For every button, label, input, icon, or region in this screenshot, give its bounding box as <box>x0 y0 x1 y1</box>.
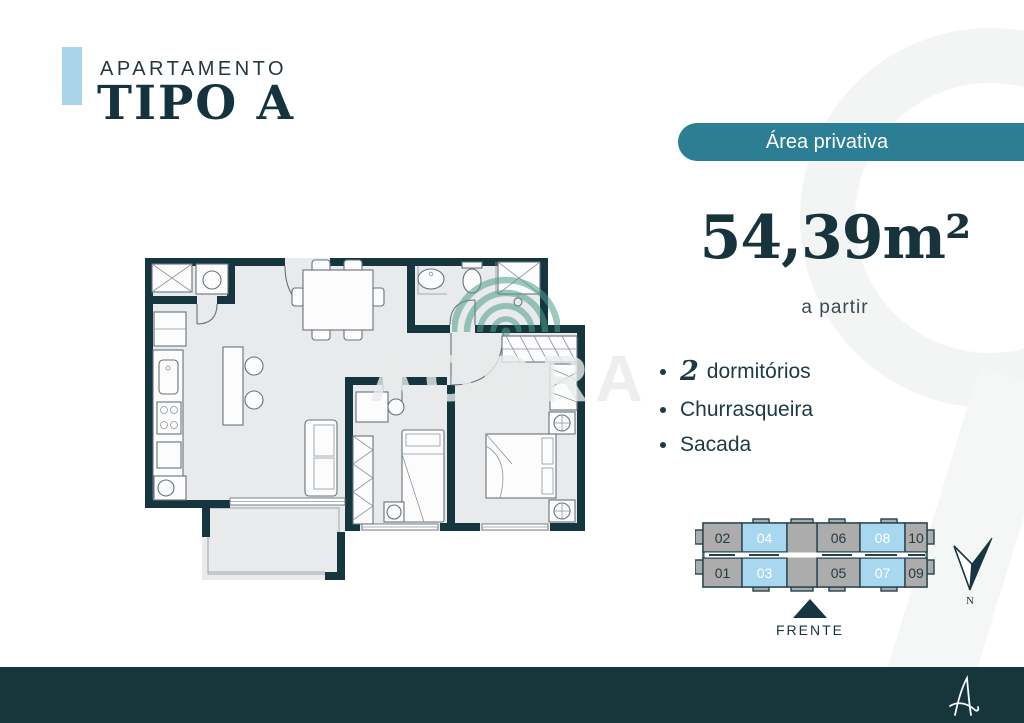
unit-number: 09 <box>908 565 924 581</box>
brand-logo-icon <box>948 675 982 717</box>
apartment-title: TIPO A <box>97 76 295 131</box>
unit-number: 05 <box>831 565 847 581</box>
unit-number: 08 <box>875 530 891 546</box>
feature-list: 2 dormitórios Churrasqueira Sacada <box>660 356 813 468</box>
front-marker: FRENTE <box>772 599 848 638</box>
private-area-note: a partir <box>650 297 1020 319</box>
bullet-icon <box>660 407 666 413</box>
unit-number: 04 <box>757 530 773 546</box>
bullet-icon <box>660 369 666 375</box>
feature-balcony: Sacada <box>660 433 813 457</box>
private-area-value: 54,39m² <box>650 203 1020 273</box>
brochure-page: { "colors": { "accent_blue": "#A9D4EA", … <box>0 0 1024 723</box>
unit-number: 10 <box>908 530 924 546</box>
unit-number: 01 <box>715 565 731 581</box>
footer-bar <box>0 667 1024 723</box>
feature-label: Churrasqueira <box>680 398 813 422</box>
feature-label: Sacada <box>680 433 751 457</box>
feature-bedrooms: 2 dormitórios <box>660 356 813 387</box>
bullet-icon <box>660 442 666 448</box>
compass-north-label: N <box>966 595 974 606</box>
unit-position-diagram: 02 04 06 08 10 01 03 05 07 09 <box>695 517 935 592</box>
feature-barbecue: Churrasqueira <box>660 398 813 422</box>
brand-watermark-text: AGORA <box>352 340 667 416</box>
floor-plan <box>140 250 645 615</box>
unit-number: 02 <box>715 530 731 546</box>
front-label: FRENTE <box>772 622 848 638</box>
unit-number: 06 <box>831 530 847 546</box>
accent-bar <box>62 47 82 105</box>
private-area-badge: Área privativa <box>678 123 1024 161</box>
front-arrow-icon <box>793 599 827 618</box>
brand-signal-watermark-icon <box>452 276 560 348</box>
private-area-badge-label: Área privativa <box>766 131 888 154</box>
feature-label: dormitórios <box>707 360 811 384</box>
north-compass-icon: N <box>948 530 1000 606</box>
unit-number: 03 <box>757 565 773 581</box>
unit-number: 07 <box>875 565 891 581</box>
feature-value: 2 <box>680 356 699 387</box>
